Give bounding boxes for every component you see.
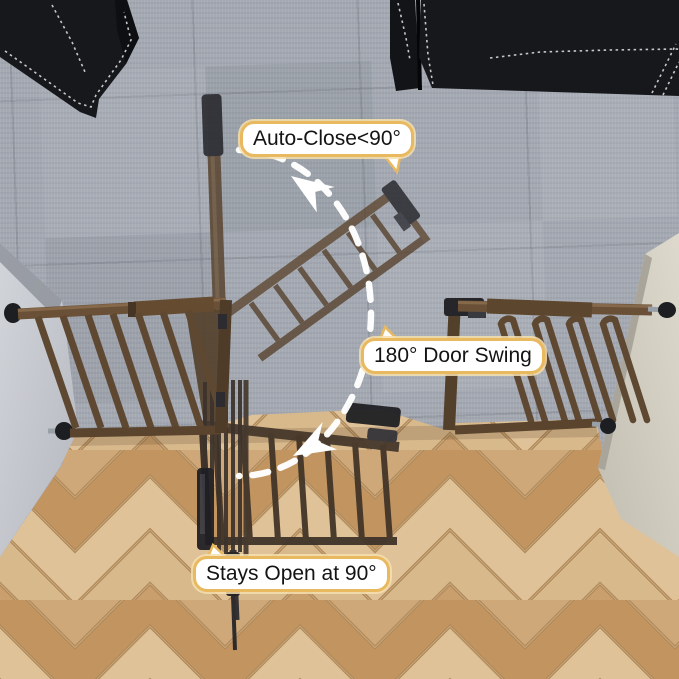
door-latch-handle [197,468,214,550]
right-couch [390,0,679,96]
carpet-tiles [39,50,679,404]
stays-open-label: Stays Open at 90° [193,556,390,592]
rail-extension-sleeve [134,304,214,309]
door-swing-label: 180° Door Swing [361,338,545,374]
rail-extension-sleeve [487,306,592,310]
hinge-bracket [216,392,225,407]
pressure-mount-knob [658,302,676,318]
hinge-bracket [218,314,227,329]
baby-gate-product-image: Auto-Close<90° 180° Door Swing Stays Ope… [0,0,679,679]
auto-close-label: Auto-Close<90° [240,121,414,157]
pressure-mount-knob [600,418,616,434]
